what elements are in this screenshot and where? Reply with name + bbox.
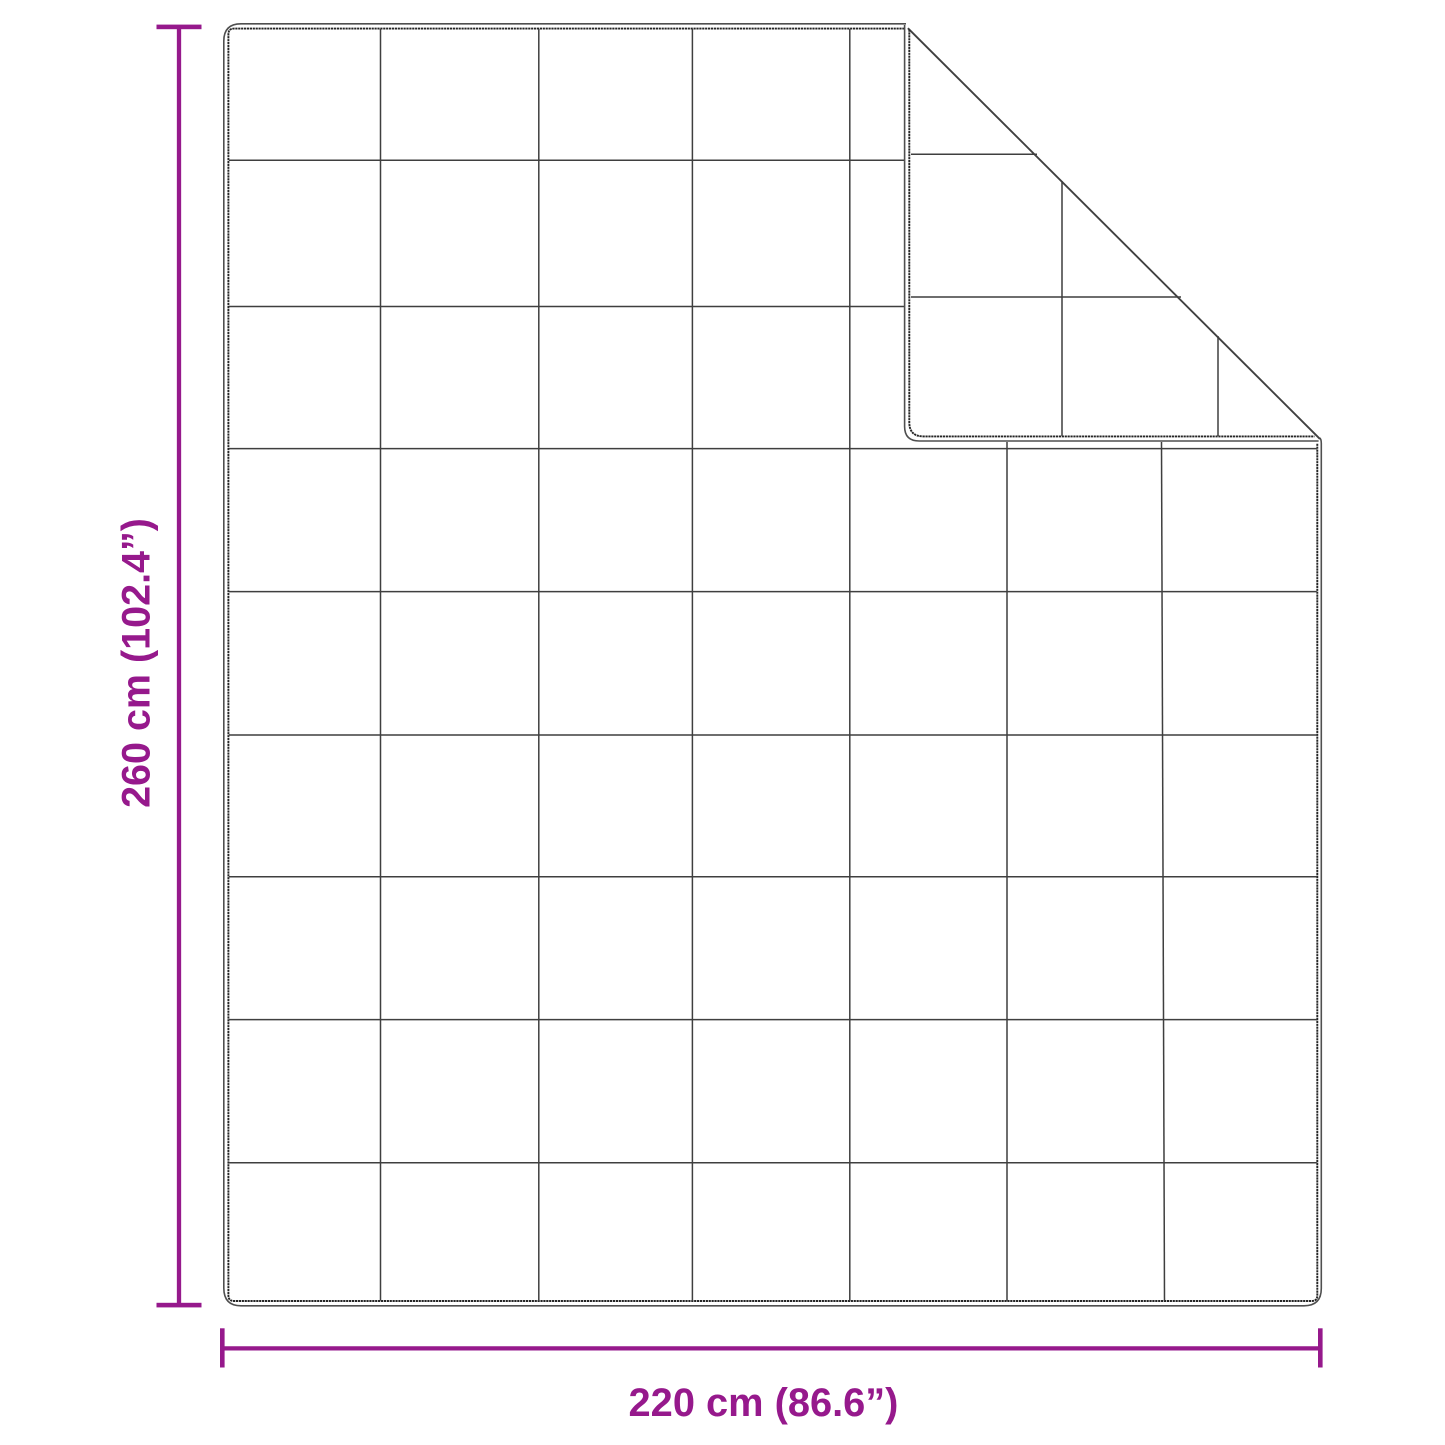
svg-text:260 cm (102.4”): 260 cm (102.4”) [115,518,159,808]
svg-text:220 cm (86.6”): 220 cm (86.6”) [629,1381,899,1425]
